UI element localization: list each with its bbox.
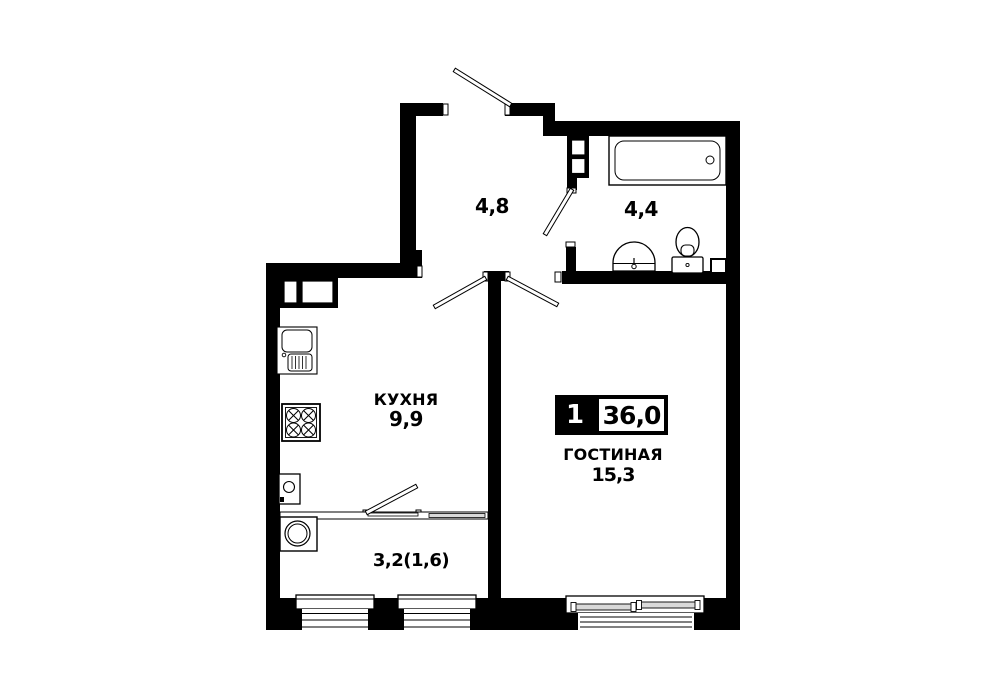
- wall-segment: [400, 250, 422, 265]
- balcony-window-sash: [429, 514, 485, 518]
- wall-segment: [266, 263, 422, 278]
- balcony-door-threshold: [368, 513, 418, 516]
- window-balcony-1: [296, 595, 374, 630]
- area-badge: 1 36,0: [555, 395, 668, 435]
- room-area-living-room: 15,3: [538, 466, 688, 485]
- entrance-door: [456, 71, 509, 104]
- door-leaves: [368, 71, 571, 512]
- room-area-hallway: 4,8: [457, 196, 527, 216]
- wall-segment: [726, 121, 740, 630]
- balcony-door: [368, 487, 415, 512]
- window-living-room: [566, 596, 704, 630]
- wall-segment: [266, 263, 280, 630]
- stove: [282, 404, 320, 441]
- kitchen-sink: [277, 327, 317, 374]
- bathroom-sink: [613, 242, 655, 271]
- floor-plan: 4,8 4,4 КУХНЯ 9,9 1 36,0 ГОСТИНАЯ 15,3 3…: [0, 0, 1006, 700]
- room-area-kitchen: 9,9: [341, 409, 471, 429]
- rooms-count-badge: 1: [555, 395, 595, 435]
- kitchen-door: [436, 279, 484, 306]
- wall-segment: [543, 121, 740, 136]
- wall-segment: [400, 103, 443, 116]
- wall-segment: [488, 278, 501, 630]
- total-area-badge: 36,0: [595, 395, 668, 435]
- living-room-door: [509, 279, 556, 304]
- room-label-kitchen: КУХНЯ: [341, 392, 471, 408]
- bathroom-door: [546, 191, 571, 233]
- toilet: [672, 228, 703, 274]
- water-heater: [279, 474, 300, 504]
- room-area-bathroom: 4,4: [606, 199, 676, 219]
- wall-niche: [711, 259, 726, 273]
- vent-shaft-kitchen: [284, 281, 333, 303]
- room-label-living-room: ГОСТИНАЯ: [538, 447, 688, 463]
- window-balcony-2: [398, 595, 476, 630]
- wall-segment: [566, 247, 576, 274]
- room-area-balcony: 3,2(1,6): [326, 552, 496, 570]
- bathtub: [609, 136, 726, 185]
- washing-machine: [280, 517, 317, 551]
- floor-plan-drawing: [0, 0, 1006, 700]
